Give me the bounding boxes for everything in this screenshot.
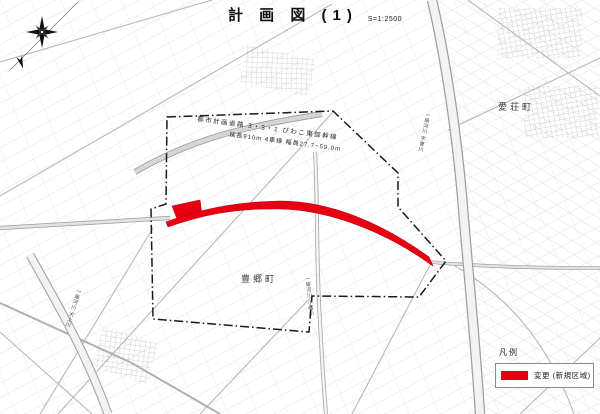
legend-label-change: 変更 (新規区域) [534,370,591,381]
legend-box: 変更 (新規区域) [495,363,594,388]
town-label-aisho: 愛荘町 [498,100,534,113]
plan-map-sheet: 計 画 図 (1) S=1:2500 都市計画道路 3・3・1 びわこ東部幹線 … [0,0,600,414]
scale-note: S=1:2500 [368,16,402,25]
sheet-title-block: 計 画 図 (1) S=1:2500 [228,4,402,25]
town-label-toyosato: 豊郷町 [241,272,277,285]
legend-swatch-change [501,371,528,380]
sheet-title: 計 画 図 (1) [228,4,358,25]
legend-heading: 凡例 [499,347,519,358]
